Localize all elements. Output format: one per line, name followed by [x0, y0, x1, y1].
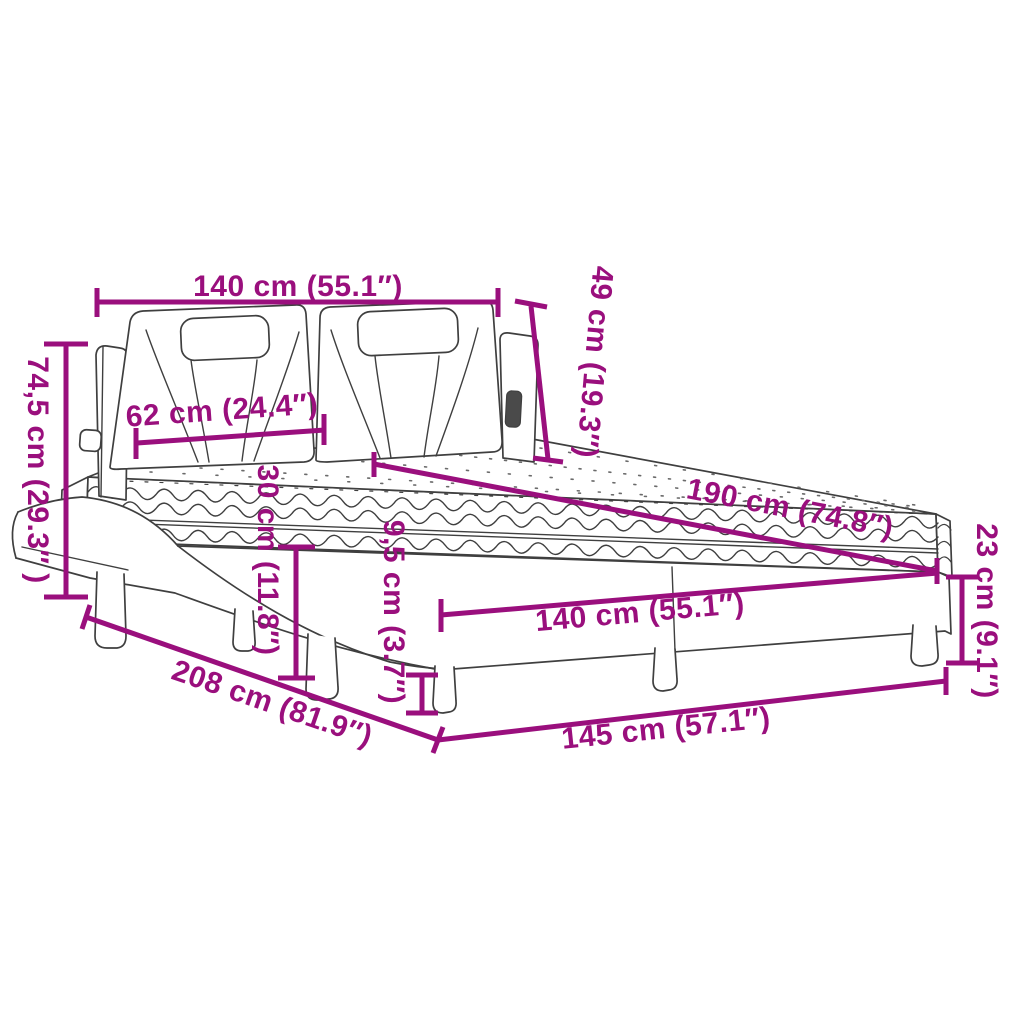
left-panel-knob: [79, 429, 101, 451]
headrest-pillow-right: [357, 308, 459, 356]
leg: [306, 634, 338, 700]
dimension-label-headboard-width: 140 cm (55.1″): [193, 270, 403, 304]
headrest-pillow-left: [180, 315, 270, 361]
leg: [911, 625, 938, 666]
leg: [653, 648, 677, 691]
dimension-diagram: 140 cm (55.1″) 49 cm (19.3″) 74,5 cm (29…: [0, 0, 1024, 1024]
dimension-label-base-height: 23 cm (9.1″): [969, 523, 1003, 698]
dimension-label-side-rail-height: 30 cm (11.8″): [250, 465, 284, 656]
dimension-label-overall-height: 74,5 cm (29.3″ ): [20, 356, 54, 584]
right-panel-knob: [505, 391, 522, 428]
dimension-label-leg-height: 9,5 cm (3.7″): [376, 520, 410, 704]
leg: [95, 572, 126, 648]
